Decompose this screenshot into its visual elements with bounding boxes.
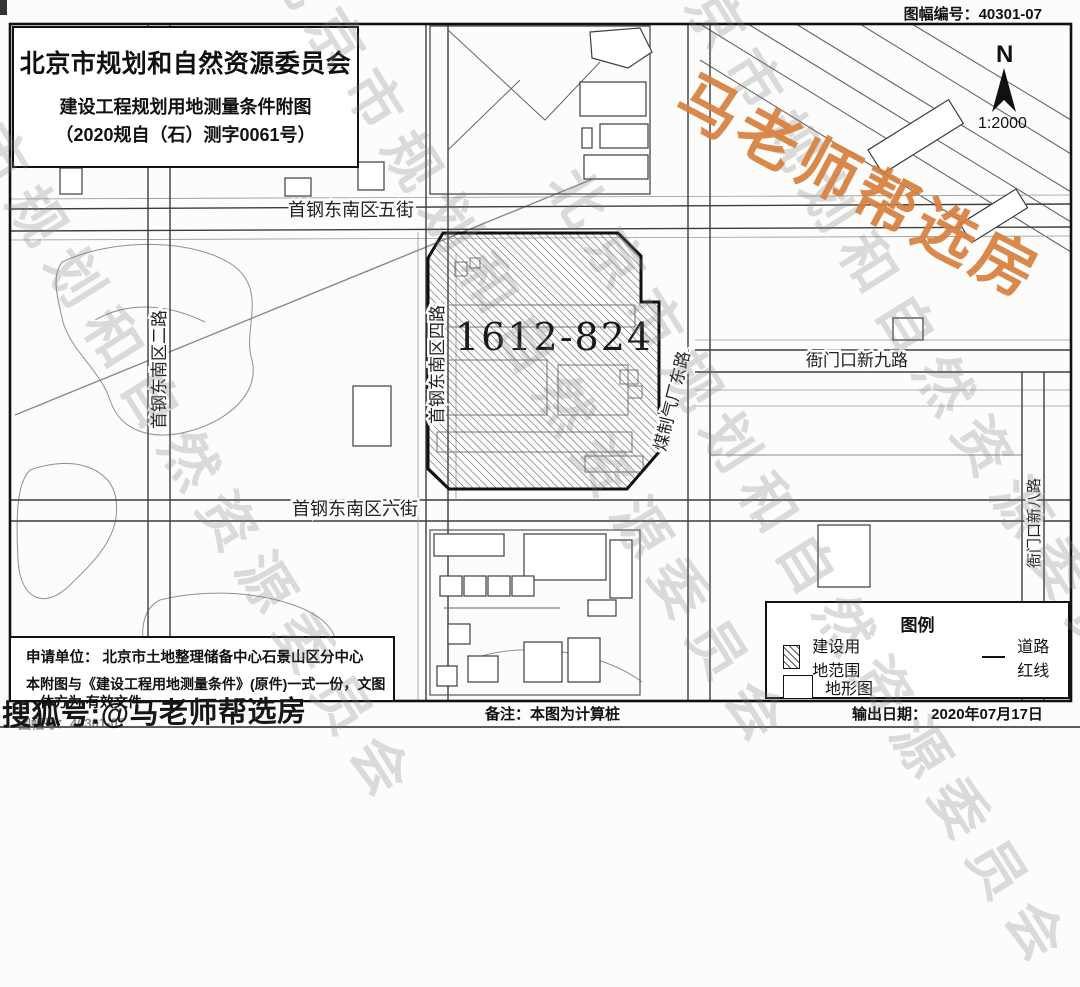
legend-box: 图例 建设用地范围 道路红线 地形图 xyxy=(765,601,1070,699)
applicant-info-block: 申请单位： 北京市土地整理储备中心石景山区分中心 本附图与《建设工程用地测量条件… xyxy=(11,636,395,700)
applicant-line: 申请单位： 北京市土地整理储备中心石景山区分中心 xyxy=(26,646,393,667)
legend-label-parcel: 建设用地范围 xyxy=(812,633,864,681)
diagonal-corridor xyxy=(700,24,1071,252)
north-arrow: N 1:2000 xyxy=(978,41,1027,132)
document-title-line: 建设工程规划用地测量条件附图 xyxy=(55,94,315,122)
scan-corner-mark xyxy=(0,0,7,15)
document-number: （2020规自（石）测字0061号） xyxy=(55,122,315,150)
output-date: 输出日期： 2020年07月17日 xyxy=(852,703,1043,724)
parcel-number: 1612-824 xyxy=(455,315,653,359)
road-label-silu: 首钢东南区四路 xyxy=(428,305,447,424)
road-label-xinjiulu: 衙门口新九路 xyxy=(806,351,908,370)
road-label-liujie: 首钢东南区六街 xyxy=(292,499,418,519)
north-label: N xyxy=(996,41,1013,68)
title-block: 北京市规划和自然资源委员会 建设工程规划用地测量条件附图 （2020规自（石）测… xyxy=(12,26,359,168)
page-edge-line xyxy=(0,726,1080,728)
hatched-swatch-icon xyxy=(783,645,800,669)
legend-label-topo: 地形图 xyxy=(825,675,873,699)
empty-swatch-icon xyxy=(783,675,813,699)
parcel-area: 1612-824 xyxy=(428,233,659,489)
legend-rows: 建设用地范围 道路红线 地形图 xyxy=(767,636,1068,702)
parcel-boundary xyxy=(428,233,659,489)
road-line-icon xyxy=(982,656,1005,658)
validity-line: 本附图与《建设工程用地测量条件》(原件)一式一份，文图一体方为 有效文件 xyxy=(26,676,386,711)
sheet-number: 图幅编号：40301-07 xyxy=(904,3,1042,24)
road-label-xinbalu: 衙门口新八路 xyxy=(1026,478,1043,568)
document-title: 建设工程规划用地测量条件附图 （2020规自（石）测字0061号） xyxy=(55,94,315,150)
agency-name: 北京市规划和自然资源委员会 xyxy=(20,44,352,80)
scale-label: 1:2000 xyxy=(978,115,1027,132)
legend-row-parcel: 建设用地范围 道路红线 xyxy=(783,642,1052,672)
legend-label-road: 道路红线 xyxy=(1017,633,1052,681)
remark-note: 备注：本图为计算桩 xyxy=(485,703,620,724)
road-label-wujie: 首钢东南区五街 xyxy=(288,200,414,220)
road-label-erlu: 首钢东南区二路 xyxy=(150,310,169,429)
